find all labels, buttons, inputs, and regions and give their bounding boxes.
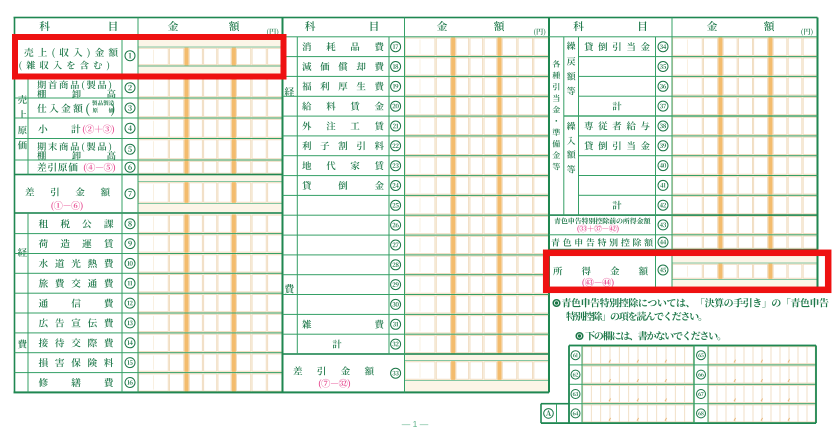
- svg-text:— 1 —: — 1 —: [402, 419, 429, 429]
